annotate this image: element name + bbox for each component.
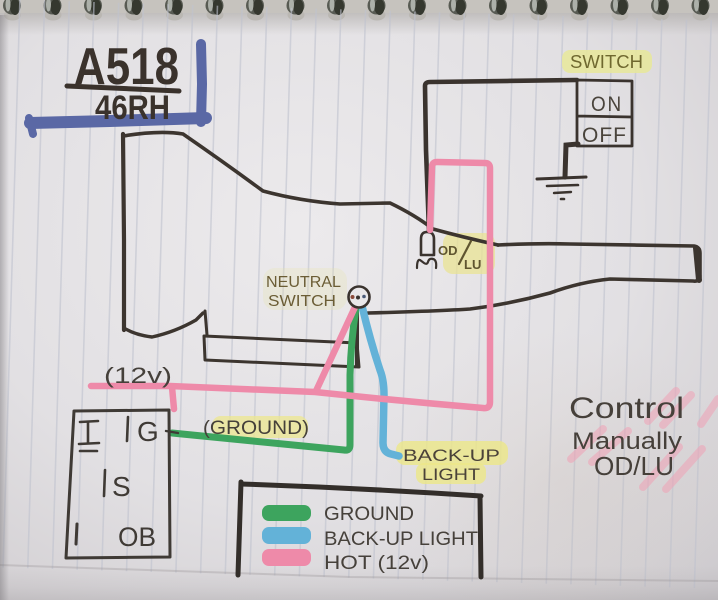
svg-text:SWITCH: SWITCH — [268, 293, 336, 310]
svg-text:OD/LU: OD/LU — [594, 451, 674, 481]
svg-text:OB: OB — [118, 522, 156, 552]
svg-text:BACK-UP LIGHT: BACK-UP LIGHT — [324, 529, 478, 550]
svg-text:ON: ON — [591, 93, 623, 116]
svg-text:BACK-UP: BACK-UP — [403, 446, 500, 465]
svg-text:GROUND: GROUND — [324, 504, 414, 525]
svg-text:OD: OD — [438, 243, 458, 258]
svg-text:LU: LU — [464, 257, 481, 272]
svg-text:LIGHT: LIGHT — [422, 465, 480, 484]
svg-text:OFF: OFF — [582, 124, 627, 147]
svg-text:SWITCH: SWITCH — [570, 52, 643, 72]
svg-text:(GROUND): (GROUND) — [203, 418, 309, 439]
svg-text:HOT (12v): HOT (12v) — [324, 553, 429, 574]
svg-text:Control: Control — [569, 392, 684, 425]
svg-text:NEUTRAL: NEUTRAL — [266, 274, 341, 291]
svg-text:G: G — [137, 416, 159, 447]
svg-text:46RH: 46RH — [95, 89, 170, 127]
svg-text:(12v): (12v) — [104, 363, 172, 388]
svg-text:S: S — [112, 471, 131, 502]
